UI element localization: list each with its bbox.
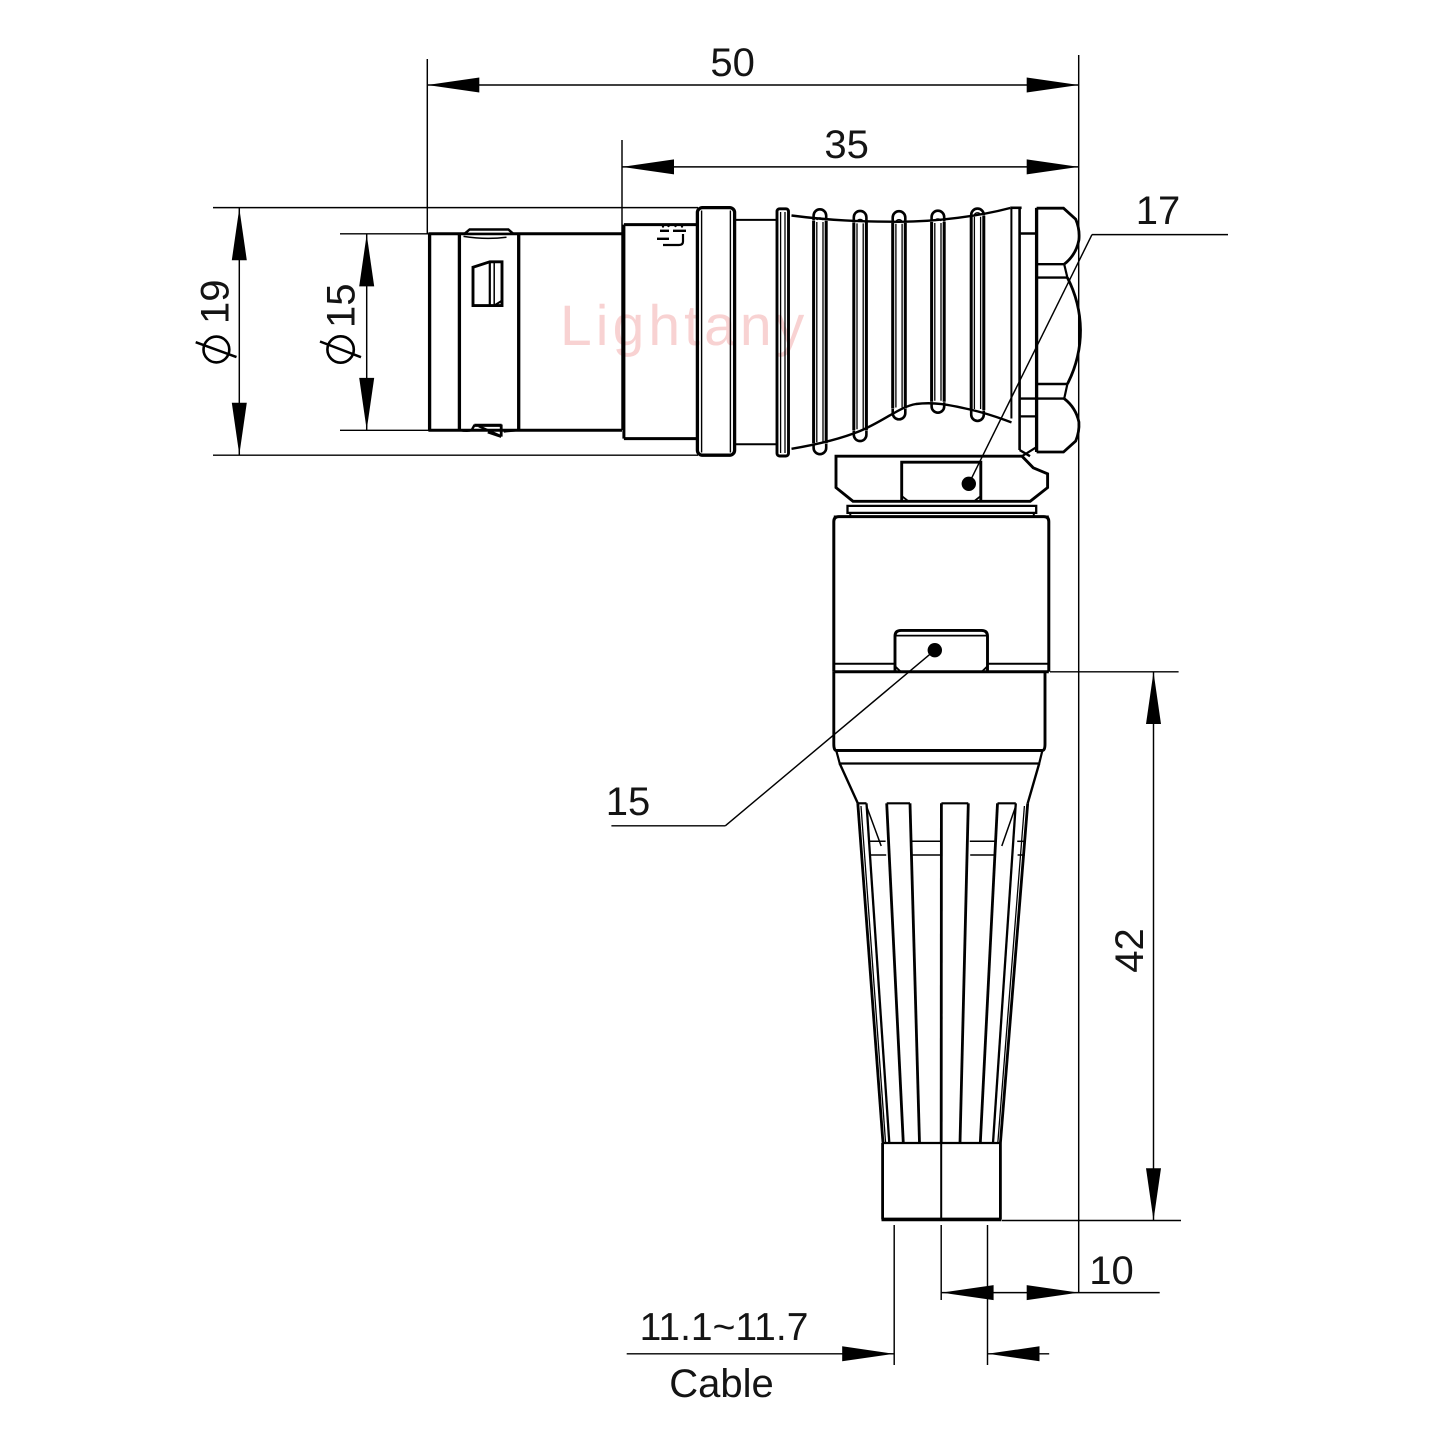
svg-text:10: 10: [1089, 1249, 1134, 1293]
svg-text:17: 17: [1136, 189, 1181, 233]
svg-text:50: 50: [710, 41, 755, 85]
svg-text:42: 42: [1108, 928, 1152, 973]
svg-text:35: 35: [824, 123, 869, 167]
svg-text:11.1~11.7: 11.1~11.7: [640, 1306, 809, 1349]
svg-text:19: 19: [193, 280, 237, 325]
svg-text:Cable: Cable: [669, 1362, 774, 1406]
svg-text:Lightany: Lightany: [560, 294, 808, 358]
svg-text:15: 15: [606, 780, 651, 824]
svg-text:15: 15: [320, 283, 364, 328]
